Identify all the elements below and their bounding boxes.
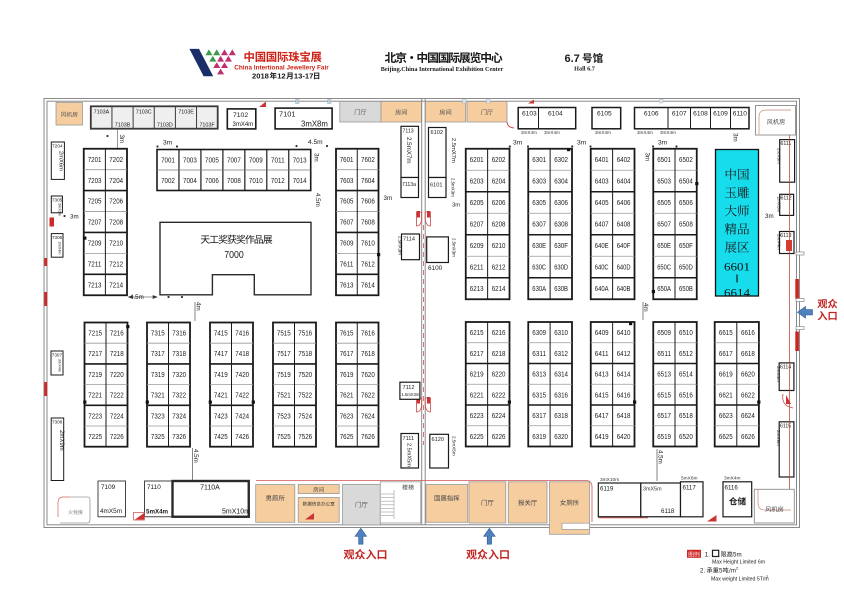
svg-text:6620: 6620 <box>741 370 755 379</box>
svg-text:6411: 6411 <box>595 349 609 358</box>
svg-text:6626: 6626 <box>741 432 755 441</box>
svg-text:6202: 6202 <box>492 155 506 164</box>
svg-text:Beijing.China International Ex: Beijing.China International Exhibition C… <box>381 66 504 73</box>
svg-text:3m: 3m <box>644 153 651 162</box>
svg-text:630E: 630E <box>532 241 546 250</box>
svg-text:7013: 7013 <box>293 155 307 164</box>
svg-text:7225: 7225 <box>88 432 102 441</box>
svg-text:6406: 6406 <box>617 198 631 207</box>
svg-text:6116: 6116 <box>725 485 739 492</box>
svg-text:6309: 6309 <box>532 328 546 337</box>
svg-text:6311: 6311 <box>532 349 546 358</box>
svg-text:6222: 6222 <box>492 390 506 399</box>
svg-text:7218: 7218 <box>110 349 124 358</box>
svg-text:3m: 3m <box>577 140 587 147</box>
svg-text:7203: 7203 <box>88 176 102 185</box>
svg-text:7522: 7522 <box>298 391 312 400</box>
svg-text:7617: 7617 <box>340 349 354 358</box>
svg-text:7209: 7209 <box>88 239 102 248</box>
svg-text:650E: 650E <box>657 241 671 250</box>
svg-text:5mX4m: 5mX4m <box>146 509 169 516</box>
svg-text:Max Height Limited 6m: Max Height Limited 6m <box>712 560 765 566</box>
svg-text:6310: 6310 <box>554 328 568 337</box>
svg-text:7103E: 7103E <box>178 109 194 115</box>
svg-text:2: 2 <box>766 575 768 579</box>
svg-text:2mX4m: 2mX4m <box>57 359 61 372</box>
svg-text:7614: 7614 <box>361 281 375 290</box>
svg-text:7604: 7604 <box>361 176 375 185</box>
svg-text:2mX6m: 2mX6m <box>777 148 782 164</box>
svg-text:7317: 7317 <box>151 349 165 358</box>
svg-text:6216: 6216 <box>492 328 506 337</box>
svg-text:6615: 6615 <box>719 328 733 337</box>
svg-text:7306: 7306 <box>52 235 63 240</box>
svg-text:7204: 7204 <box>52 144 63 150</box>
svg-text:6117: 6117 <box>683 485 697 492</box>
svg-text:6213: 6213 <box>470 284 484 293</box>
svg-text:6415: 6415 <box>595 390 609 399</box>
svg-text:640E: 640E <box>595 241 609 250</box>
svg-text:6217: 6217 <box>470 349 484 358</box>
svg-text:6618: 6618 <box>741 349 755 358</box>
svg-text:2.: 2. <box>700 568 705 575</box>
svg-text:6100: 6100 <box>428 265 443 272</box>
svg-text:2.5mX7m: 2.5mX7m <box>405 137 412 163</box>
svg-text:7215: 7215 <box>88 329 102 338</box>
svg-text:6218: 6218 <box>492 349 506 358</box>
svg-text:7210: 7210 <box>109 239 123 248</box>
svg-text:7103D: 7103D <box>157 122 173 128</box>
svg-text:7208: 7208 <box>109 218 123 227</box>
svg-text:7224: 7224 <box>110 411 124 420</box>
svg-text:6624: 6624 <box>741 411 755 420</box>
svg-text:7426: 7426 <box>235 432 249 441</box>
svg-text:6416: 6416 <box>617 390 631 399</box>
svg-text:7516: 7516 <box>298 329 312 338</box>
svg-text:7622: 7622 <box>361 391 375 400</box>
svg-text:3mX4m: 3mX4m <box>637 130 653 135</box>
svg-text:6625: 6625 <box>719 432 733 441</box>
svg-text:7012: 7012 <box>271 176 285 185</box>
svg-text:7423: 7423 <box>214 411 228 420</box>
svg-text:2.5mX7m: 2.5mX7m <box>450 138 456 163</box>
svg-text:6101: 6101 <box>430 183 442 189</box>
svg-text:7623: 7623 <box>340 411 354 420</box>
svg-text:7216: 7216 <box>110 329 124 338</box>
svg-text:7110A: 7110A <box>200 485 220 492</box>
svg-text:7415: 7415 <box>214 329 228 338</box>
svg-text:7213: 7213 <box>88 281 102 290</box>
svg-text:7607: 7607 <box>340 218 354 227</box>
svg-text:650A: 650A <box>657 284 671 293</box>
svg-text:6617: 6617 <box>719 349 733 358</box>
svg-text:7113: 7113 <box>403 129 414 135</box>
svg-text:6109: 6109 <box>713 111 728 118</box>
svg-text:6306: 6306 <box>554 198 568 207</box>
svg-text:6513: 6513 <box>657 370 671 379</box>
svg-text:6505: 6505 <box>657 198 671 207</box>
svg-text:7110: 7110 <box>147 484 161 491</box>
svg-text:7605: 7605 <box>340 197 354 206</box>
svg-text:7221: 7221 <box>88 391 102 400</box>
svg-text:7206: 7206 <box>109 197 123 206</box>
svg-text:6501: 6501 <box>657 155 671 164</box>
svg-text:6407: 6407 <box>595 220 609 229</box>
svg-text:4m: 4m <box>195 302 202 311</box>
svg-text:7626: 7626 <box>361 432 375 441</box>
svg-text:4.5m: 4.5m <box>314 193 321 207</box>
svg-text:1.5mX3m: 1.5mX3m <box>402 392 420 397</box>
svg-text:6110: 6110 <box>733 111 748 118</box>
svg-text:6308: 6308 <box>554 220 568 229</box>
svg-text:6401: 6401 <box>595 155 609 164</box>
svg-text:3m: 3m <box>163 140 173 147</box>
svg-text:6509: 6509 <box>657 328 671 337</box>
svg-text:6223: 6223 <box>470 411 484 420</box>
svg-text:630D: 630D <box>554 263 568 272</box>
svg-text:2mX6m: 2mX6m <box>58 151 64 171</box>
svg-text:7318: 7318 <box>172 349 186 358</box>
svg-text:3m: 3m <box>313 153 320 162</box>
svg-text:3mX4m: 3mX4m <box>724 476 741 482</box>
svg-text:6502: 6502 <box>679 155 693 164</box>
svg-text:6404: 6404 <box>617 177 631 186</box>
svg-text:7320: 7320 <box>172 370 186 379</box>
svg-text:7422: 7422 <box>235 391 249 400</box>
svg-text:2018: 2018 <box>252 72 269 81</box>
svg-text:7220: 7220 <box>110 370 124 379</box>
svg-text:6506: 6506 <box>679 198 693 207</box>
svg-text:6614: 6614 <box>724 286 750 300</box>
svg-text:7424: 7424 <box>235 411 249 420</box>
svg-text:7226: 7226 <box>110 432 124 441</box>
svg-text:7223: 7223 <box>88 411 102 420</box>
svg-text:7014: 7014 <box>293 176 307 185</box>
svg-text:6302: 6302 <box>554 155 568 164</box>
svg-text:6108: 6108 <box>693 111 708 118</box>
svg-text:6315: 6315 <box>532 390 546 399</box>
svg-text:7207: 7207 <box>88 218 102 227</box>
svg-text:5mX6m: 5mX6m <box>681 476 698 482</box>
svg-text:2mX9m: 2mX9m <box>776 430 781 446</box>
svg-text:2.5mX3m: 2.5mX3m <box>452 238 457 257</box>
svg-text:650B: 650B <box>679 284 693 293</box>
svg-text:7211: 7211 <box>88 260 102 269</box>
svg-text:7008: 7008 <box>227 176 241 185</box>
svg-text:7602: 7602 <box>361 155 375 164</box>
svg-text:650D: 650D <box>679 263 693 272</box>
svg-text:6511: 6511 <box>657 349 671 358</box>
svg-text:7418: 7418 <box>235 349 249 358</box>
svg-text:3mX4m: 3mX4m <box>233 122 254 128</box>
svg-text:7001: 7001 <box>161 155 175 164</box>
svg-text:6316: 6316 <box>554 390 568 399</box>
svg-text:6510: 6510 <box>679 328 693 337</box>
svg-text:4mX5m: 4mX5m <box>100 508 122 515</box>
svg-text:7612: 7612 <box>361 260 375 269</box>
svg-text:7609: 7609 <box>340 239 354 248</box>
svg-text:6518: 6518 <box>679 411 693 420</box>
svg-text:7003: 7003 <box>183 155 197 164</box>
svg-text:6405: 6405 <box>595 198 609 207</box>
svg-text:7319: 7319 <box>151 370 165 379</box>
svg-text:6413: 6413 <box>595 370 609 379</box>
svg-text:7321: 7321 <box>151 391 165 400</box>
svg-text:Max weight Limited 5T/m: Max weight Limited 5T/m <box>711 577 769 583</box>
svg-text:640D: 640D <box>617 263 631 272</box>
svg-text:7324: 7324 <box>172 411 186 420</box>
svg-text:6120: 6120 <box>432 437 444 443</box>
svg-text:7305: 7305 <box>52 198 63 203</box>
svg-text:1.: 1. <box>705 552 711 559</box>
svg-text:6622: 6622 <box>741 390 755 399</box>
svg-text:7520: 7520 <box>298 370 312 379</box>
svg-text:7613: 7613 <box>340 281 354 290</box>
svg-text:6313: 6313 <box>532 370 546 379</box>
svg-text:6601: 6601 <box>724 260 750 274</box>
svg-text:12: 12 <box>277 72 285 81</box>
svg-text:6219: 6219 <box>470 370 484 379</box>
svg-text:7007: 7007 <box>227 155 241 164</box>
svg-text:6418: 6418 <box>617 411 631 420</box>
svg-text:6410: 6410 <box>617 328 631 337</box>
svg-text:640A: 640A <box>595 284 609 293</box>
svg-text:7219: 7219 <box>88 370 102 379</box>
svg-text:6514: 6514 <box>679 370 693 379</box>
svg-text:7214: 7214 <box>109 281 123 290</box>
svg-text:6303: 6303 <box>532 177 546 186</box>
svg-text:640C: 640C <box>595 263 609 272</box>
svg-text:7611: 7611 <box>340 260 354 269</box>
svg-text:3m: 3m <box>70 214 79 221</box>
svg-text:7515: 7515 <box>277 329 291 338</box>
svg-text:6517: 6517 <box>657 411 671 420</box>
svg-text:6301: 6301 <box>532 155 546 164</box>
svg-text:7518: 7518 <box>298 349 312 358</box>
svg-text:3m: 3m <box>452 203 460 209</box>
svg-text:7619: 7619 <box>340 370 354 379</box>
svg-text:6225: 6225 <box>470 432 484 441</box>
svg-text:6623: 6623 <box>719 411 733 420</box>
svg-text:6417: 6417 <box>595 411 609 420</box>
svg-text:6210: 6210 <box>492 241 506 250</box>
svg-text:650C: 650C <box>657 263 671 272</box>
svg-text:2.5mX3m: 2.5mX3m <box>451 178 456 197</box>
svg-text:3m: 3m <box>384 195 393 202</box>
svg-text:6420: 6420 <box>617 432 631 441</box>
svg-text:4.5m: 4.5m <box>308 139 323 146</box>
svg-text:7111: 7111 <box>403 436 415 442</box>
svg-text:7608: 7608 <box>361 218 375 227</box>
svg-text:3mX4m: 3mX4m <box>544 130 560 135</box>
svg-text:3mX10m: 3mX10m <box>600 477 619 483</box>
svg-text:7307: 7307 <box>52 353 63 358</box>
svg-text:2mX4m: 2mX4m <box>58 242 62 255</box>
svg-text:7421: 7421 <box>214 391 228 400</box>
svg-text:6402: 6402 <box>617 155 631 164</box>
svg-text:7524: 7524 <box>298 411 312 420</box>
svg-text:630A: 630A <box>532 284 546 293</box>
svg-text:6403: 6403 <box>595 177 609 186</box>
svg-text:630F: 630F <box>554 241 568 250</box>
svg-text:6201: 6201 <box>470 155 484 164</box>
svg-text:3mX5m: 3mX5m <box>643 487 662 493</box>
svg-text:6105: 6105 <box>597 111 612 118</box>
svg-text:7102: 7102 <box>233 112 248 119</box>
svg-text:7621: 7621 <box>340 391 354 400</box>
svg-text:7002: 7002 <box>161 176 175 185</box>
svg-text:3m: 3m <box>732 133 739 142</box>
svg-text:7315: 7315 <box>151 329 165 338</box>
svg-text:3m: 3m <box>118 135 125 144</box>
svg-text:2.5mX5m: 2.5mX5m <box>406 443 412 467</box>
svg-text:6412: 6412 <box>617 349 631 358</box>
svg-text:7308: 7308 <box>52 420 63 425</box>
svg-text:7523: 7523 <box>277 411 291 420</box>
svg-text:7212: 7212 <box>109 260 123 269</box>
svg-text:7103C: 7103C <box>136 109 152 115</box>
svg-text:6215: 6215 <box>470 328 484 337</box>
svg-text:7416: 7416 <box>235 329 249 338</box>
svg-text:7519: 7519 <box>277 370 291 379</box>
svg-text:7103A: 7103A <box>94 109 110 115</box>
svg-text:5mX10m: 5mX10m <box>222 509 250 516</box>
svg-text:6103: 6103 <box>522 111 537 118</box>
svg-text:7616: 7616 <box>361 329 375 338</box>
svg-text:5m: 5m <box>733 552 742 559</box>
svg-text:3m: 3m <box>765 213 774 220</box>
svg-text:7005: 7005 <box>205 155 219 164</box>
svg-text:640F: 640F <box>617 241 631 250</box>
svg-text:7004: 7004 <box>183 176 197 185</box>
svg-text:7420: 7420 <box>235 370 249 379</box>
svg-text:7517: 7517 <box>277 349 291 358</box>
svg-text:6211: 6211 <box>470 263 484 272</box>
svg-text:6119: 6119 <box>600 486 614 493</box>
svg-text:7114: 7114 <box>403 237 415 243</box>
svg-text:7525: 7525 <box>277 432 291 441</box>
svg-text:4.5m: 4.5m <box>192 449 199 463</box>
svg-text:7322: 7322 <box>172 391 186 400</box>
svg-text:6224: 6224 <box>492 411 506 420</box>
svg-text:7113a: 7113a <box>402 182 416 188</box>
svg-text:6307: 6307 <box>532 220 546 229</box>
svg-text:5: 5 <box>719 568 723 575</box>
svg-text:7103F: 7103F <box>199 122 215 128</box>
svg-text:7217: 7217 <box>88 349 102 358</box>
svg-text:3m: 3m <box>658 140 668 147</box>
svg-text:7205: 7205 <box>88 197 102 206</box>
svg-text:7620: 7620 <box>361 370 375 379</box>
svg-text:7222: 7222 <box>110 391 124 400</box>
svg-text:6208: 6208 <box>492 220 506 229</box>
svg-text:6214: 6214 <box>492 284 506 293</box>
svg-text:/m: /m <box>729 568 736 575</box>
svg-text:7204: 7204 <box>109 176 123 185</box>
svg-text:7624: 7624 <box>361 411 375 420</box>
svg-text:6408: 6408 <box>617 220 631 229</box>
svg-text:7202: 7202 <box>109 155 123 164</box>
svg-text:7000: 7000 <box>224 250 244 261</box>
svg-text:6220: 6220 <box>492 370 506 379</box>
svg-text:6205: 6205 <box>470 198 484 207</box>
svg-text:6512: 6512 <box>679 349 693 358</box>
svg-text:7615: 7615 <box>340 329 354 338</box>
svg-text:2.5mX3m: 2.5mX3m <box>398 236 403 255</box>
svg-text:6508: 6508 <box>679 220 693 229</box>
svg-text:6515: 6515 <box>657 390 671 399</box>
svg-text:7010: 7010 <box>249 176 263 185</box>
svg-text:2mX4m: 2mX4m <box>777 234 782 250</box>
svg-text:6314: 6314 <box>554 370 568 379</box>
svg-text:630B: 630B <box>554 284 568 293</box>
svg-text:6104: 6104 <box>548 111 563 118</box>
svg-text:7521: 7521 <box>277 391 291 400</box>
svg-text:6221: 6221 <box>470 390 484 399</box>
svg-text:6409: 6409 <box>595 328 609 337</box>
svg-text:6503: 6503 <box>657 177 671 186</box>
svg-text:7425: 7425 <box>214 432 228 441</box>
svg-text:7326: 7326 <box>172 432 186 441</box>
svg-text:7419: 7419 <box>214 370 228 379</box>
svg-text:6419: 6419 <box>595 432 609 441</box>
svg-text:6317: 6317 <box>532 411 546 420</box>
svg-text:7325: 7325 <box>151 432 165 441</box>
svg-text:4.5m: 4.5m <box>657 450 664 464</box>
svg-text:2.5mX5m: 2.5mX5m <box>452 436 457 456</box>
svg-text:6621: 6621 <box>719 390 733 399</box>
svg-text:6107: 6107 <box>672 111 687 118</box>
svg-text:6226: 6226 <box>492 432 506 441</box>
svg-text:3mX8m: 3mX8m <box>301 119 328 128</box>
svg-text:6319: 6319 <box>532 432 546 441</box>
svg-text:7112: 7112 <box>403 385 415 391</box>
svg-text:7603: 7603 <box>340 176 354 185</box>
svg-text:7618: 7618 <box>361 349 375 358</box>
svg-text:3mX4m: 3mX4m <box>521 130 537 135</box>
svg-text:630C: 630C <box>532 263 546 272</box>
svg-text:13-17: 13-17 <box>294 72 313 81</box>
svg-text:7323: 7323 <box>151 411 165 420</box>
svg-text:3mX4m: 3mX4m <box>660 130 676 135</box>
svg-text:China Intertional Jewellery Fa: China Intertional Jewellery Fair <box>234 64 329 71</box>
svg-text:7011: 7011 <box>271 155 285 164</box>
svg-text:6320: 6320 <box>554 432 568 441</box>
svg-text:7009: 7009 <box>249 155 263 164</box>
svg-text:3m: 3m <box>513 140 523 147</box>
svg-text:6.7: 6.7 <box>565 53 580 65</box>
svg-text:7109: 7109 <box>101 484 116 491</box>
svg-text:6212: 6212 <box>492 263 506 272</box>
svg-text:2mX3m: 2mX3m <box>58 203 62 216</box>
svg-text:7006: 7006 <box>205 176 219 185</box>
svg-text:2mX9m: 2mX9m <box>58 430 64 451</box>
svg-text:7101: 7101 <box>279 110 295 119</box>
svg-text:6203: 6203 <box>470 177 484 186</box>
svg-text:7417: 7417 <box>214 349 228 358</box>
svg-text:7606: 7606 <box>361 197 375 206</box>
svg-text:6520: 6520 <box>679 432 693 441</box>
svg-text:6312: 6312 <box>554 349 568 358</box>
svg-text:6414: 6414 <box>617 370 631 379</box>
svg-text:6102: 6102 <box>431 130 443 136</box>
svg-text:640B: 640B <box>617 284 631 293</box>
svg-text:7610: 7610 <box>361 239 375 248</box>
svg-text:6304: 6304 <box>554 177 568 186</box>
svg-text:6118: 6118 <box>661 508 675 515</box>
svg-text:6206: 6206 <box>492 198 506 207</box>
svg-text:6619: 6619 <box>719 370 733 379</box>
